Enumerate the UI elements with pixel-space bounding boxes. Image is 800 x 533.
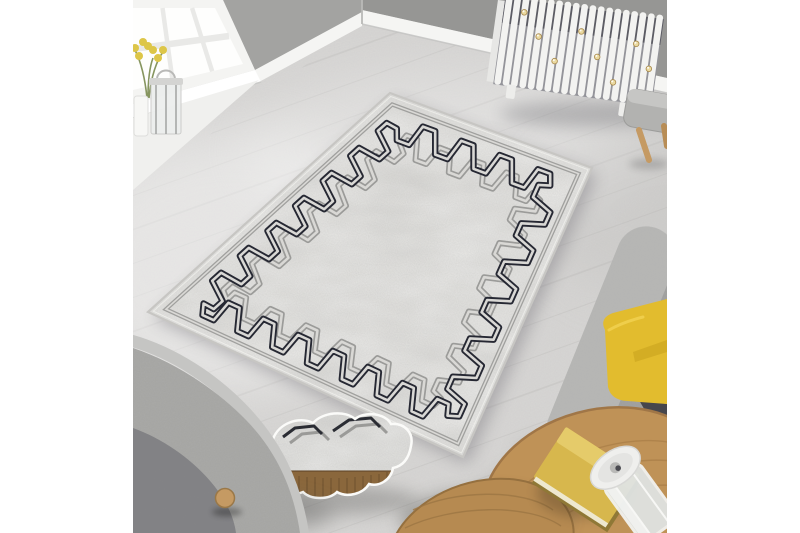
right-white-margin — [667, 0, 800, 533]
fairy-light-bulb — [578, 28, 584, 34]
sill-lantern-top — [149, 78, 183, 85]
living-room-rug-photo — [133, 0, 667, 533]
left-chair-leg-shadow — [212, 508, 242, 517]
fairy-light-bulb — [551, 58, 557, 64]
fairy-light-bulb — [610, 79, 616, 85]
left-chair-leg — [216, 489, 235, 508]
product-photo-canvas — [0, 0, 800, 533]
sill-vase — [134, 96, 148, 136]
flower-bloom — [144, 42, 152, 50]
left-white-margin — [0, 0, 133, 533]
flower-bloom — [154, 54, 162, 62]
fairy-light-bulb — [535, 33, 541, 39]
fairy-light-bulb — [646, 66, 652, 72]
fairy-light-bulb — [521, 9, 527, 15]
flower-bloom — [159, 46, 167, 54]
flower-bloom — [135, 52, 143, 60]
fairy-light-bulb — [633, 41, 639, 47]
fairy-light-bulb — [594, 54, 600, 60]
scene-illustration — [133, 0, 667, 533]
